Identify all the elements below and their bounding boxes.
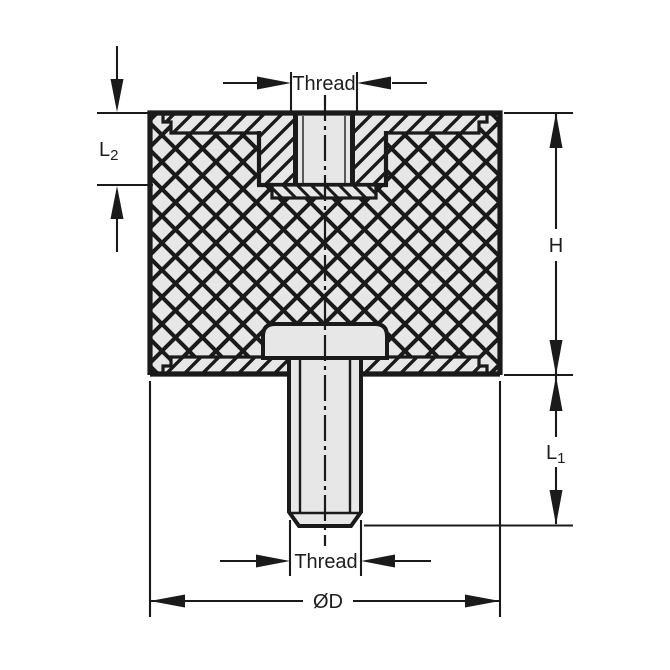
mount-body xyxy=(150,95,500,546)
arrow-down-icon xyxy=(111,79,124,112)
arrow-right-icon xyxy=(257,77,291,90)
arrow-left-icon xyxy=(361,555,395,568)
dimension-l1: L1 xyxy=(364,376,573,526)
arrow-down-icon xyxy=(550,490,563,525)
arrow-right-icon xyxy=(465,595,500,608)
thread-bottom-label: Thread xyxy=(294,551,357,573)
technical-drawing-canvas: Thread L2 H L1 Thread xyxy=(0,0,670,670)
arrow-down-icon xyxy=(550,340,563,375)
diameter-label: ØD xyxy=(313,591,343,613)
l1-label: L1 xyxy=(546,442,565,467)
l2-label: L2 xyxy=(99,139,118,164)
arrow-left-icon xyxy=(150,595,185,608)
arrow-right-icon xyxy=(256,555,290,568)
arrow-up-icon xyxy=(550,113,563,148)
dimension-l2: L2 xyxy=(97,46,153,252)
arrow-left-icon xyxy=(357,77,391,90)
thread-top-label: Thread xyxy=(292,73,355,95)
arrow-up-icon xyxy=(550,376,563,411)
arrow-up-icon xyxy=(111,186,124,219)
rubber-mount-cross-section: Thread L2 H L1 Thread xyxy=(0,0,670,670)
dimension-h: H xyxy=(504,113,573,375)
h-label: H xyxy=(549,235,563,257)
